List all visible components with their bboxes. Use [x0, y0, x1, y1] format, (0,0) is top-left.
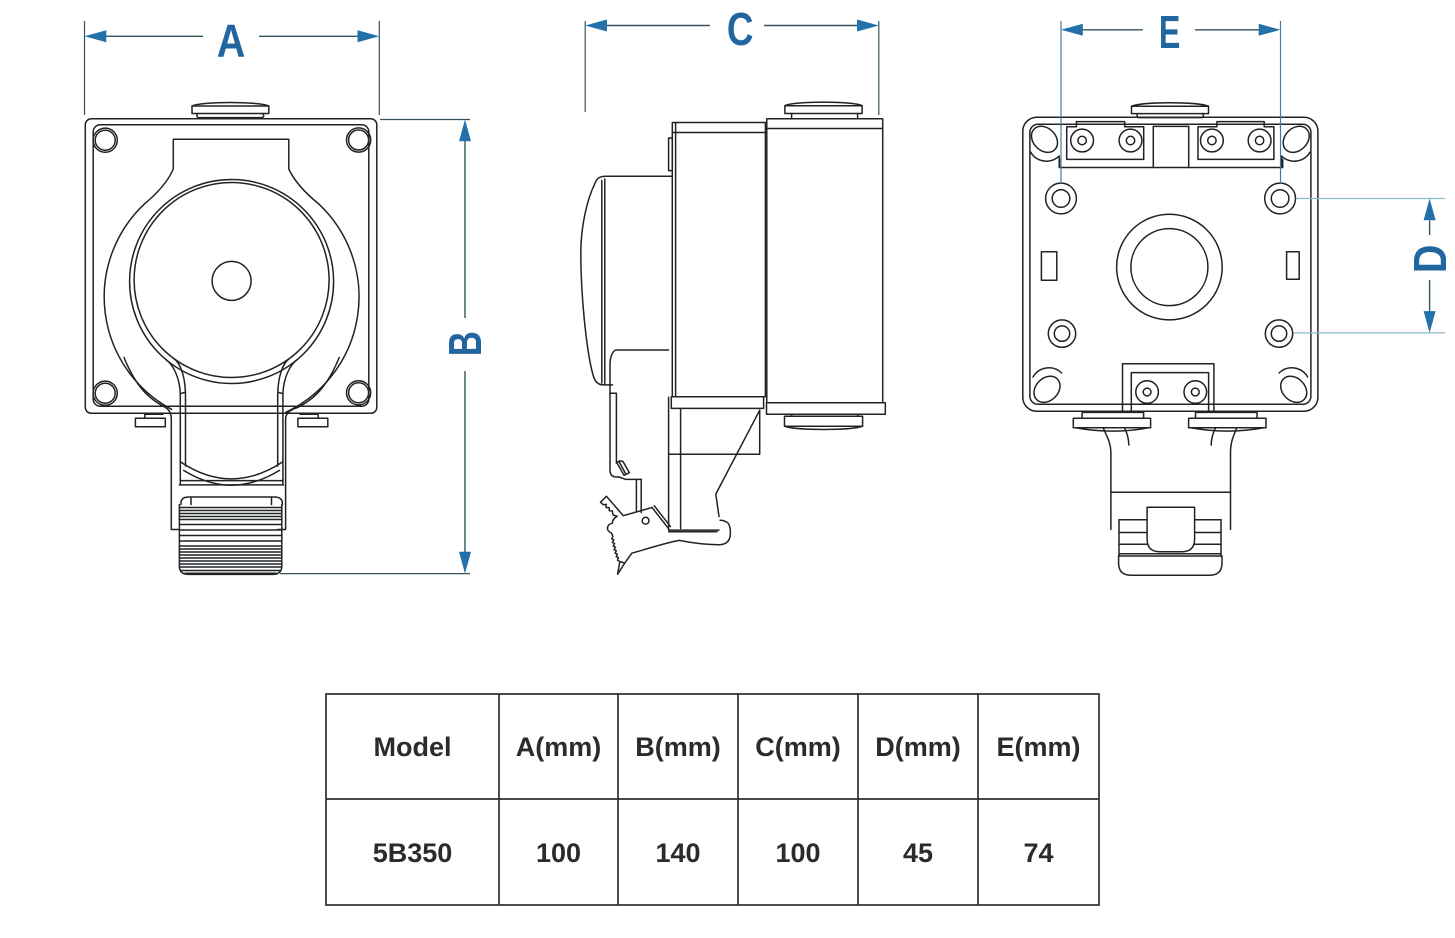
svg-text:Model: Model: [374, 732, 452, 762]
svg-text:D(mm): D(mm): [875, 732, 961, 762]
svg-text:100: 100: [536, 838, 581, 868]
svg-text:C: C: [727, 3, 754, 55]
svg-text:E(mm): E(mm): [996, 732, 1080, 762]
svg-text:B(mm): B(mm): [635, 732, 721, 762]
svg-text:A(mm): A(mm): [516, 732, 602, 762]
svg-text:45: 45: [903, 838, 933, 868]
svg-text:100: 100: [775, 838, 820, 868]
svg-text:E: E: [1159, 7, 1180, 58]
svg-text:A: A: [217, 16, 246, 67]
svg-text:D: D: [1405, 245, 1455, 274]
svg-text:C(mm): C(mm): [755, 732, 841, 762]
svg-text:140: 140: [655, 838, 700, 868]
svg-text:B: B: [439, 331, 491, 356]
svg-text:74: 74: [1023, 838, 1053, 868]
svg-text:5B350: 5B350: [373, 838, 453, 868]
